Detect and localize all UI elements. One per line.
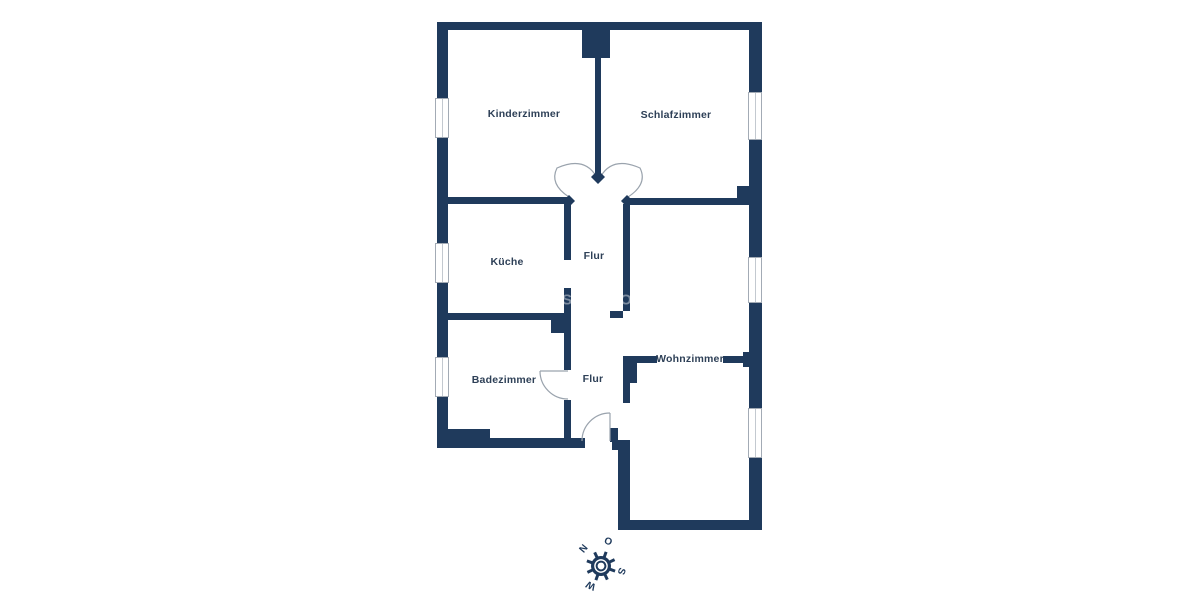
window-wohnzimmer-lower — [748, 408, 762, 458]
door-hinge-markers — [563, 170, 633, 207]
window-wohnzimmer-upper — [748, 257, 762, 303]
wall-badezimmer-right-upper — [564, 320, 571, 370]
wall-badezimmer-right-lower — [564, 400, 571, 440]
wall-livingroom-lower-left — [618, 440, 630, 530]
window-schlafzimmer — [748, 92, 762, 140]
floor-plan-canvas: Kinderzimmer Schlafzimmer Küche Flur Bad… — [0, 0, 1200, 600]
compass-letter-east: O — [602, 536, 613, 549]
room-label-flur-upper: Flur — [584, 250, 605, 262]
wall-exterior-top — [437, 22, 762, 30]
compass-letter-west: W — [584, 578, 597, 592]
window-kinderzimmer — [435, 98, 449, 138]
wall-wohnzimmer-partial-block — [625, 363, 637, 383]
window-kueche — [435, 243, 449, 283]
wall-kinderzimmer-bottom — [448, 197, 571, 204]
compass-letter-south: S — [615, 566, 628, 576]
entrance-door-swing — [582, 413, 610, 441]
wall-stub-flur — [610, 311, 623, 318]
wall-kueche-bottom — [448, 313, 571, 320]
window-badezimmer — [435, 357, 449, 397]
room-label-flur-lower: Flur — [583, 373, 604, 385]
wall-step-wohnzimmer-right — [743, 352, 751, 367]
room-label-badezimmer: Badezimmer — [472, 374, 536, 386]
wall-step-schlafzimmer-corner — [737, 186, 750, 198]
room-label-kinderzimmer: Kinderzimmer — [488, 108, 560, 120]
compass-letter-north: N — [577, 543, 590, 556]
room-label-wohnzimmer: Wohnzimmer — [656, 353, 724, 365]
wall-step-bathroom-corner — [448, 429, 490, 438]
wall-exterior-bottom-left — [437, 438, 585, 448]
wall-wohnzimmer-partial-left — [623, 356, 657, 363]
watermark-letter-right: O — [620, 292, 632, 309]
badezimmer-door-swing — [540, 371, 568, 399]
watermark-letter-left: S — [562, 292, 572, 309]
wall-exterior-bottom-right — [618, 520, 762, 530]
wall-divider-kinder-schlaf — [595, 58, 601, 173]
room-label-schlafzimmer: Schlafzimmer — [641, 109, 712, 121]
wall-schlafzimmer-bottom — [624, 198, 750, 205]
room-label-kueche: Küche — [490, 256, 523, 268]
wall-chimney-block — [582, 30, 610, 58]
wall-kueche-right-upper — [564, 204, 571, 260]
wall-entrance-post — [610, 428, 618, 442]
